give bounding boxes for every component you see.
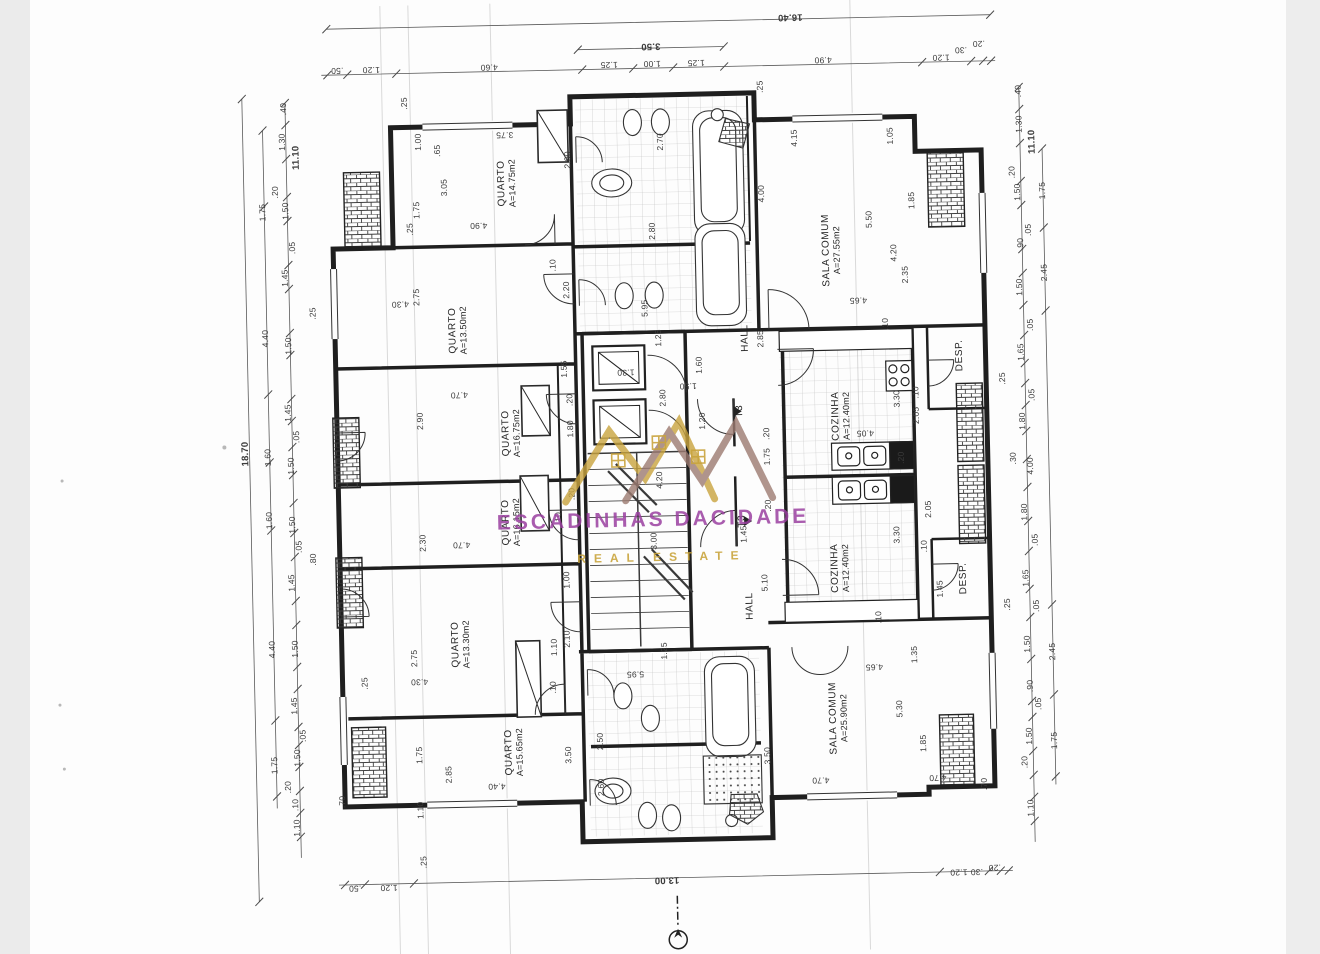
closets <box>504 110 580 717</box>
floor-plan-sheet: 16.403.50.501.204.601.251.001.254.901.20… <box>0 0 1320 954</box>
floor-plan-drawing <box>0 0 1320 954</box>
elevators <box>592 345 646 444</box>
stairs <box>588 451 694 647</box>
scanned-floor-plan-page: 16.403.50.501.204.601.251.001.254.901.20… <box>0 0 1320 954</box>
scan-noise <box>53 445 233 770</box>
north-arrow-icon <box>668 896 687 949</box>
